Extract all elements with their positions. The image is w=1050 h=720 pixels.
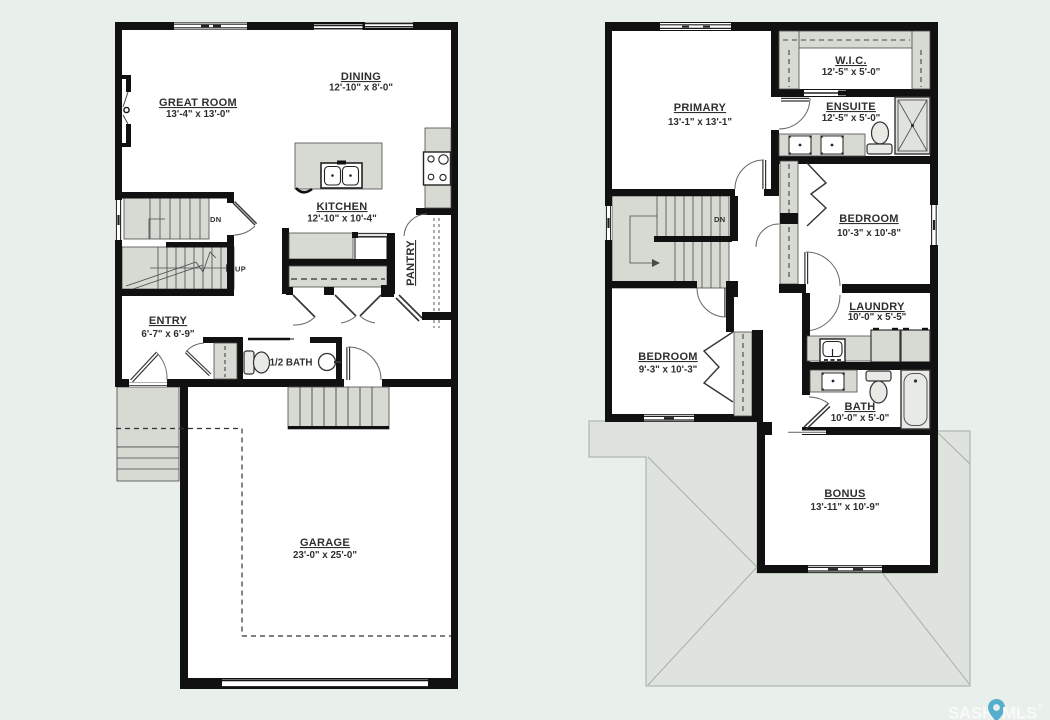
svg-text:10'-0" x 5'-0": 10'-0" x 5'-0" [831,413,890,424]
svg-text:GARAGE: GARAGE [300,537,350,549]
svg-text:DN: DN [210,215,221,224]
svg-text:12'-10" x 8'-0": 12'-10" x 8'-0" [329,83,393,94]
svg-text:9'-3" x 10'-3": 9'-3" x 10'-3" [639,365,698,376]
svg-text:1/2 BATH: 1/2 BATH [270,358,313,369]
svg-text:ENSUITE: ENSUITE [826,101,876,113]
svg-text:DINING: DINING [341,71,381,83]
svg-text:10'-0" x 5'-5": 10'-0" x 5'-5" [848,312,907,323]
svg-text:BEDROOM: BEDROOM [839,213,899,225]
svg-text:12'-10" x 10'-4": 12'-10" x 10'-4" [307,214,377,225]
svg-text:®: ® [1037,701,1044,711]
svg-text:12'-5" x 5'-0": 12'-5" x 5'-0" [822,113,881,124]
svg-text:12'-5" x 5'-0": 12'-5" x 5'-0" [822,67,881,78]
svg-text:10'-3" x 10'-8": 10'-3" x 10'-8" [837,228,901,239]
svg-text:BEDROOM: BEDROOM [638,351,698,363]
svg-text:DN: DN [714,215,725,224]
svg-text:6'-7" x 6'-9": 6'-7" x 6'-9" [141,329,194,340]
svg-text:BONUS: BONUS [824,488,865,500]
svg-text:SASK: SASK [948,704,995,720]
svg-text:23'-0" x 25'-0": 23'-0" x 25'-0" [293,550,357,561]
svg-text:13'-1" x 13'-1": 13'-1" x 13'-1" [668,117,732,128]
svg-text:GREAT ROOM: GREAT ROOM [159,97,237,109]
svg-text:UP: UP [235,265,246,274]
svg-text:MLS: MLS [1002,704,1037,720]
svg-text:ENTRY: ENTRY [149,315,188,327]
svg-text:BATH: BATH [845,401,876,413]
svg-text:W.I.C.: W.I.C. [835,55,867,67]
svg-text:13'-11" x 10'-9": 13'-11" x 10'-9" [811,502,880,513]
svg-text:PRIMARY: PRIMARY [674,102,727,114]
svg-text:13'-4" x 13'-0": 13'-4" x 13'-0" [166,109,230,120]
svg-text:KITCHEN: KITCHEN [317,201,368,213]
svg-text:PANTRY: PANTRY [405,240,417,286]
